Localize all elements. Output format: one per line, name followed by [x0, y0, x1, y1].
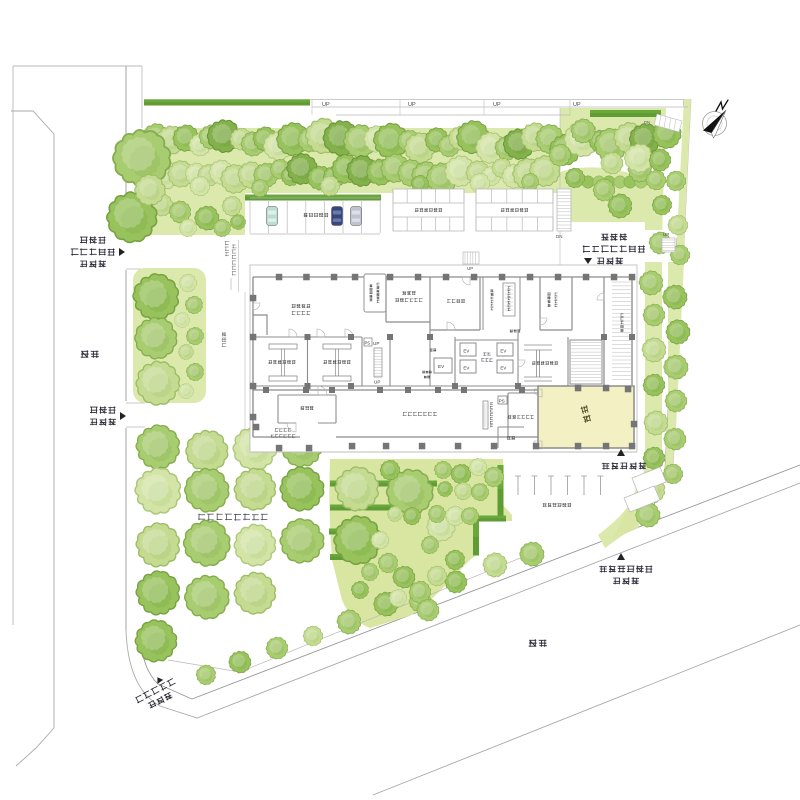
svg-text:EV: EV — [500, 349, 506, 354]
svg-text:PS: PS — [365, 341, 371, 346]
svg-text:UP: UP — [467, 266, 473, 271]
svg-text:UP: UP — [663, 232, 669, 237]
svg-text:EV: EV — [463, 349, 469, 354]
svg-text:UP: UP — [493, 102, 501, 108]
svg-text:EV: EV — [500, 366, 506, 371]
svg-text:EV: EV — [438, 364, 445, 369]
svg-text:UP: UP — [373, 341, 379, 346]
svg-text:UP: UP — [573, 102, 581, 108]
svg-text:PS: PS — [499, 399, 505, 404]
svg-text:DN: DN — [644, 120, 650, 125]
svg-text:UP: UP — [322, 102, 330, 108]
svg-text:UP: UP — [374, 380, 380, 385]
svg-text:UP: UP — [408, 102, 416, 108]
svg-text:EV: EV — [463, 366, 469, 371]
svg-text:DN: DN — [556, 234, 563, 239]
